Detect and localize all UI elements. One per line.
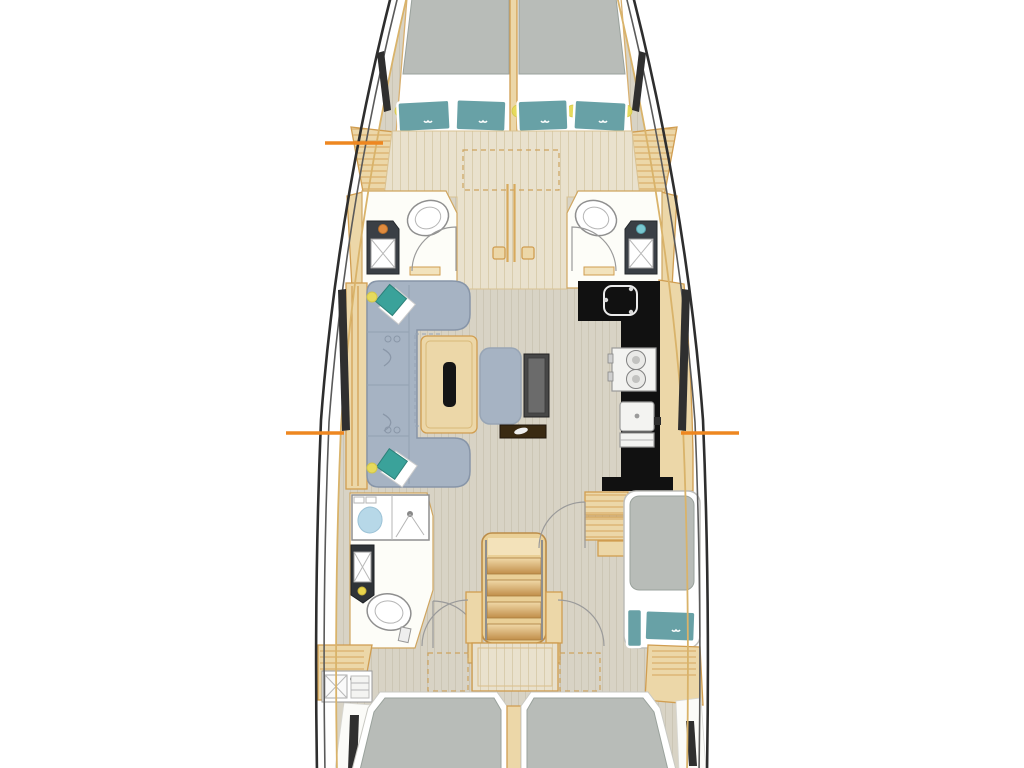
vanity-sink xyxy=(367,221,399,274)
v-berth-mattress-port xyxy=(403,0,509,74)
door-sill xyxy=(410,267,440,275)
nav-seat xyxy=(480,348,521,424)
aft-berth-starboard xyxy=(521,692,676,768)
nav-shelf xyxy=(500,425,546,438)
table-slot xyxy=(443,362,456,407)
aft-utility-sink xyxy=(322,671,372,702)
single-mattress xyxy=(630,496,694,590)
salon-table xyxy=(421,336,477,433)
light xyxy=(358,587,366,595)
yacht-floor-plan xyxy=(0,0,1024,768)
sofa-backrest-shelf xyxy=(346,283,367,489)
door-sill xyxy=(584,267,614,275)
v-berth-mattress-starboard xyxy=(519,0,625,74)
galley-aft-counter-end xyxy=(602,477,673,491)
stair-post-port xyxy=(466,592,482,643)
berth-divider xyxy=(507,706,521,768)
aft-berth-port xyxy=(352,692,507,768)
stove xyxy=(608,348,656,391)
vanity-sink xyxy=(351,545,374,603)
faucet xyxy=(637,225,646,234)
vanity-sink xyxy=(625,221,657,274)
shower xyxy=(352,495,429,540)
head-port xyxy=(362,191,457,288)
engine-box xyxy=(472,643,558,691)
chart-table xyxy=(524,354,549,417)
head-starboard xyxy=(567,191,662,288)
faucet xyxy=(379,225,388,234)
